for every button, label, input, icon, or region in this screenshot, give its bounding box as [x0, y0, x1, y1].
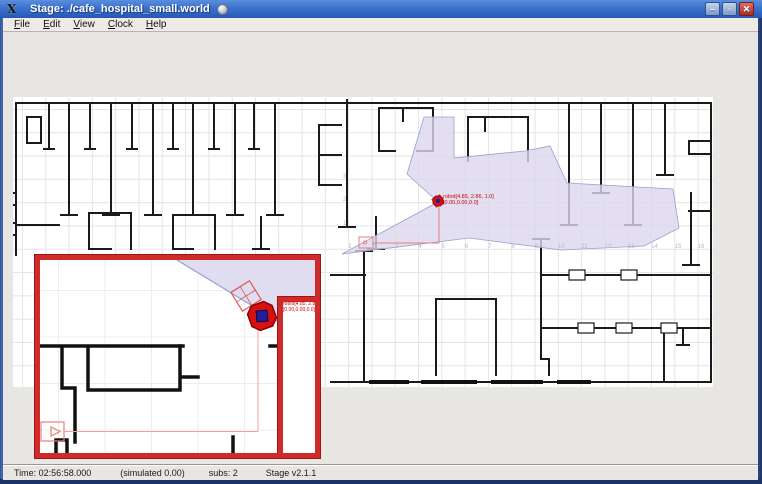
- status-simulated: (simulated 0.00): [120, 468, 185, 478]
- titlebar[interactable]: X Stage: ./cafe_hospital_small.world – ▫…: [0, 0, 762, 18]
- menu-item-clock[interactable]: Clock: [106, 19, 135, 30]
- status-time: Time: 02:56:58.000: [14, 468, 91, 478]
- laser-scan-polygon: [342, 117, 679, 254]
- menu-item-file[interactable]: File: [12, 19, 32, 30]
- menubar: File Edit View Clock Help: [3, 18, 758, 32]
- menu-item-view[interactable]: View: [71, 19, 97, 30]
- window-border-right: [758, 0, 762, 484]
- status-version: Stage v2.1.1: [266, 468, 317, 478]
- statusbar: Time: 02:56:58.000 (simulated 0.00) subs…: [3, 464, 758, 480]
- inset-robot-label: robot[4.85, 2.86, 1.0] [0.00,0.00,0.0]: [278, 297, 315, 453]
- minimize-button[interactable]: –: [705, 2, 720, 16]
- menu-item-help[interactable]: Help: [144, 19, 169, 30]
- inset-floorplan-svg: [40, 260, 315, 453]
- robot-label: robot[4.85, 2.86, 1.0] [0.00,0.00,0.0]: [443, 194, 494, 207]
- maximize-button[interactable]: ▫: [722, 2, 737, 16]
- inset-canvas: robot[4.85, 2.86, 1.0] [0.00,0.00,0.0]: [40, 260, 315, 453]
- stage-app-icon: [217, 4, 228, 15]
- inset-zoom-view[interactable]: robot[4.85, 2.86, 1.0] [0.00,0.00,0.0]: [35, 255, 320, 458]
- stage-window: X Stage: ./cafe_hospital_small.world – ▫…: [0, 0, 762, 484]
- menu-item-edit[interactable]: Edit: [41, 19, 62, 30]
- window-border-left: [0, 0, 3, 484]
- x11-logo-icon: X: [7, 3, 21, 15]
- close-button[interactable]: ✕: [739, 2, 754, 16]
- status-subs: subs: 2: [209, 468, 238, 478]
- doorway-symbols: [569, 270, 677, 333]
- window-controls: – ▫ ✕: [705, 2, 754, 16]
- window-title: Stage: ./cafe_hospital_small.world: [30, 3, 210, 15]
- inset-walls: [40, 346, 315, 453]
